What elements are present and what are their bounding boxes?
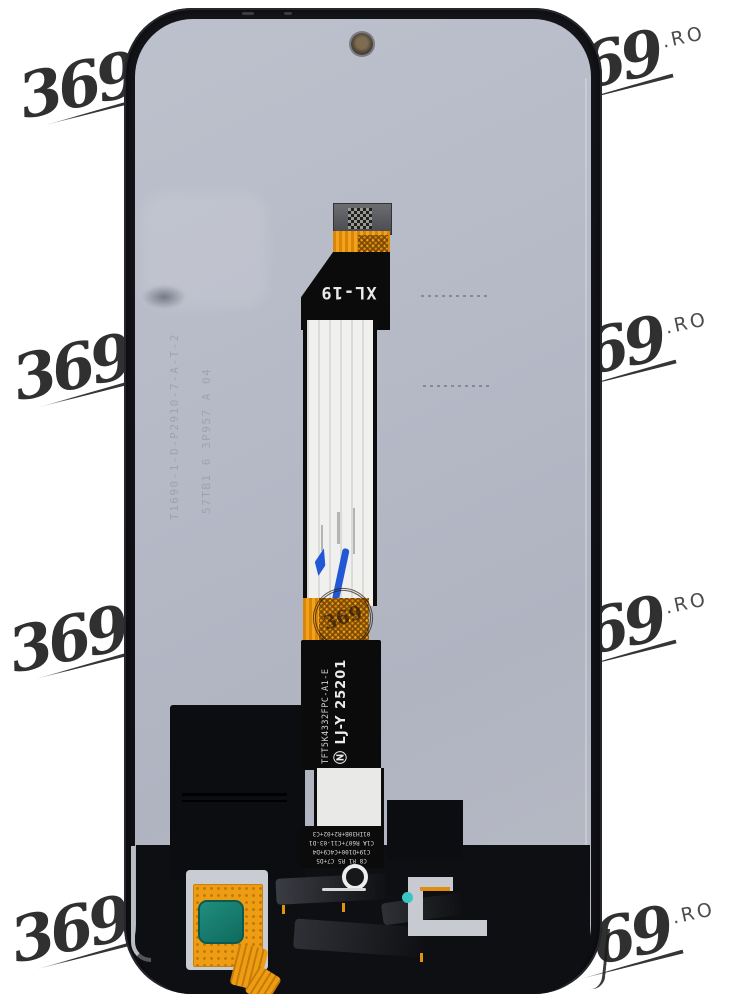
flex-ribbon-lower bbox=[314, 768, 384, 830]
lcd-assembly: T1690-1-D-P2910-7-A-T-2 57TB1 6 3P957 A … bbox=[124, 8, 602, 994]
ribbon-smear bbox=[321, 525, 323, 551]
frame-slit bbox=[284, 12, 292, 15]
ribbon-smear bbox=[353, 508, 355, 554]
teal-square-sticker bbox=[198, 900, 244, 944]
flex-print: TFT5K4332FPC-A1-E Ⓝ LJ-Y 25201 bbox=[319, 659, 350, 764]
flex-label-xl19: XL-19 bbox=[317, 282, 380, 302]
flex-kapton-band: 369 bbox=[303, 598, 369, 645]
flex-part-number: TFT5K4332FPC-A1-E bbox=[319, 659, 333, 764]
flex-ribbon-upper bbox=[303, 320, 377, 606]
flex-sliver bbox=[420, 887, 450, 891]
pcb-slot bbox=[182, 800, 287, 802]
etched-serial-col2: 57TB1 6 3P957 A 04 bbox=[200, 368, 213, 514]
etched-serial-col1: T1690-1-D-P2910-7-A-T-2 bbox=[168, 333, 181, 520]
watermark-suffix: .RO bbox=[663, 308, 710, 339]
flex-ribbon-printed: TFT5K4332FPC-A1-E Ⓝ LJ-Y 25201 bbox=[301, 640, 381, 770]
watermark-369: 369 bbox=[4, 880, 141, 972]
teal-dot-sticker bbox=[402, 892, 413, 903]
watermark-text: 369 bbox=[2, 591, 132, 687]
watermark-369: 369 bbox=[6, 318, 143, 410]
panel-edge-highlight bbox=[585, 78, 587, 848]
watermark-text: 369 bbox=[4, 881, 134, 977]
panel-scratch bbox=[423, 385, 491, 387]
panel-scratch bbox=[421, 295, 491, 297]
frame-channel bbox=[408, 920, 487, 936]
frame-inner-lip bbox=[131, 846, 151, 962]
white-mark-line bbox=[322, 888, 366, 891]
watermark-text: 369 bbox=[6, 319, 136, 415]
watermark-369: 369 bbox=[2, 590, 139, 682]
solder-dash bbox=[282, 905, 285, 914]
datamatrix-code bbox=[348, 208, 372, 229]
panel-smudge bbox=[142, 285, 186, 309]
flex-symbol: Ⓝ bbox=[334, 750, 349, 764]
silkscreen-block: C8 R1 R5 C7+D5 C19+D100+C4C9+D4 C1A R607… bbox=[300, 826, 384, 868]
pcb-shield-right bbox=[387, 800, 463, 860]
watermark-suffix: .RO bbox=[670, 898, 717, 929]
watermark-text: 369 bbox=[12, 37, 142, 133]
flex-lot-code: Ⓝ LJ-Y 25201 bbox=[333, 659, 350, 764]
frame-slit bbox=[242, 12, 254, 15]
product-photo-stage: 369 369.RO 369 369.RO 369 369.RO 369 369… bbox=[0, 0, 750, 1000]
screw-hole bbox=[342, 864, 368, 890]
camera-hole bbox=[351, 33, 373, 55]
ribbon-smear bbox=[337, 512, 340, 544]
solder-dash bbox=[420, 953, 423, 962]
silkscreen-text: C8 R1 R5 C7+D5 C19+D100+C4C9+D4 C1A R607… bbox=[309, 829, 374, 865]
watermark-suffix: .RO bbox=[660, 22, 707, 53]
pcb-slot bbox=[182, 793, 287, 796]
solder-dash bbox=[342, 903, 345, 912]
watermark-suffix: .RO bbox=[663, 588, 710, 619]
